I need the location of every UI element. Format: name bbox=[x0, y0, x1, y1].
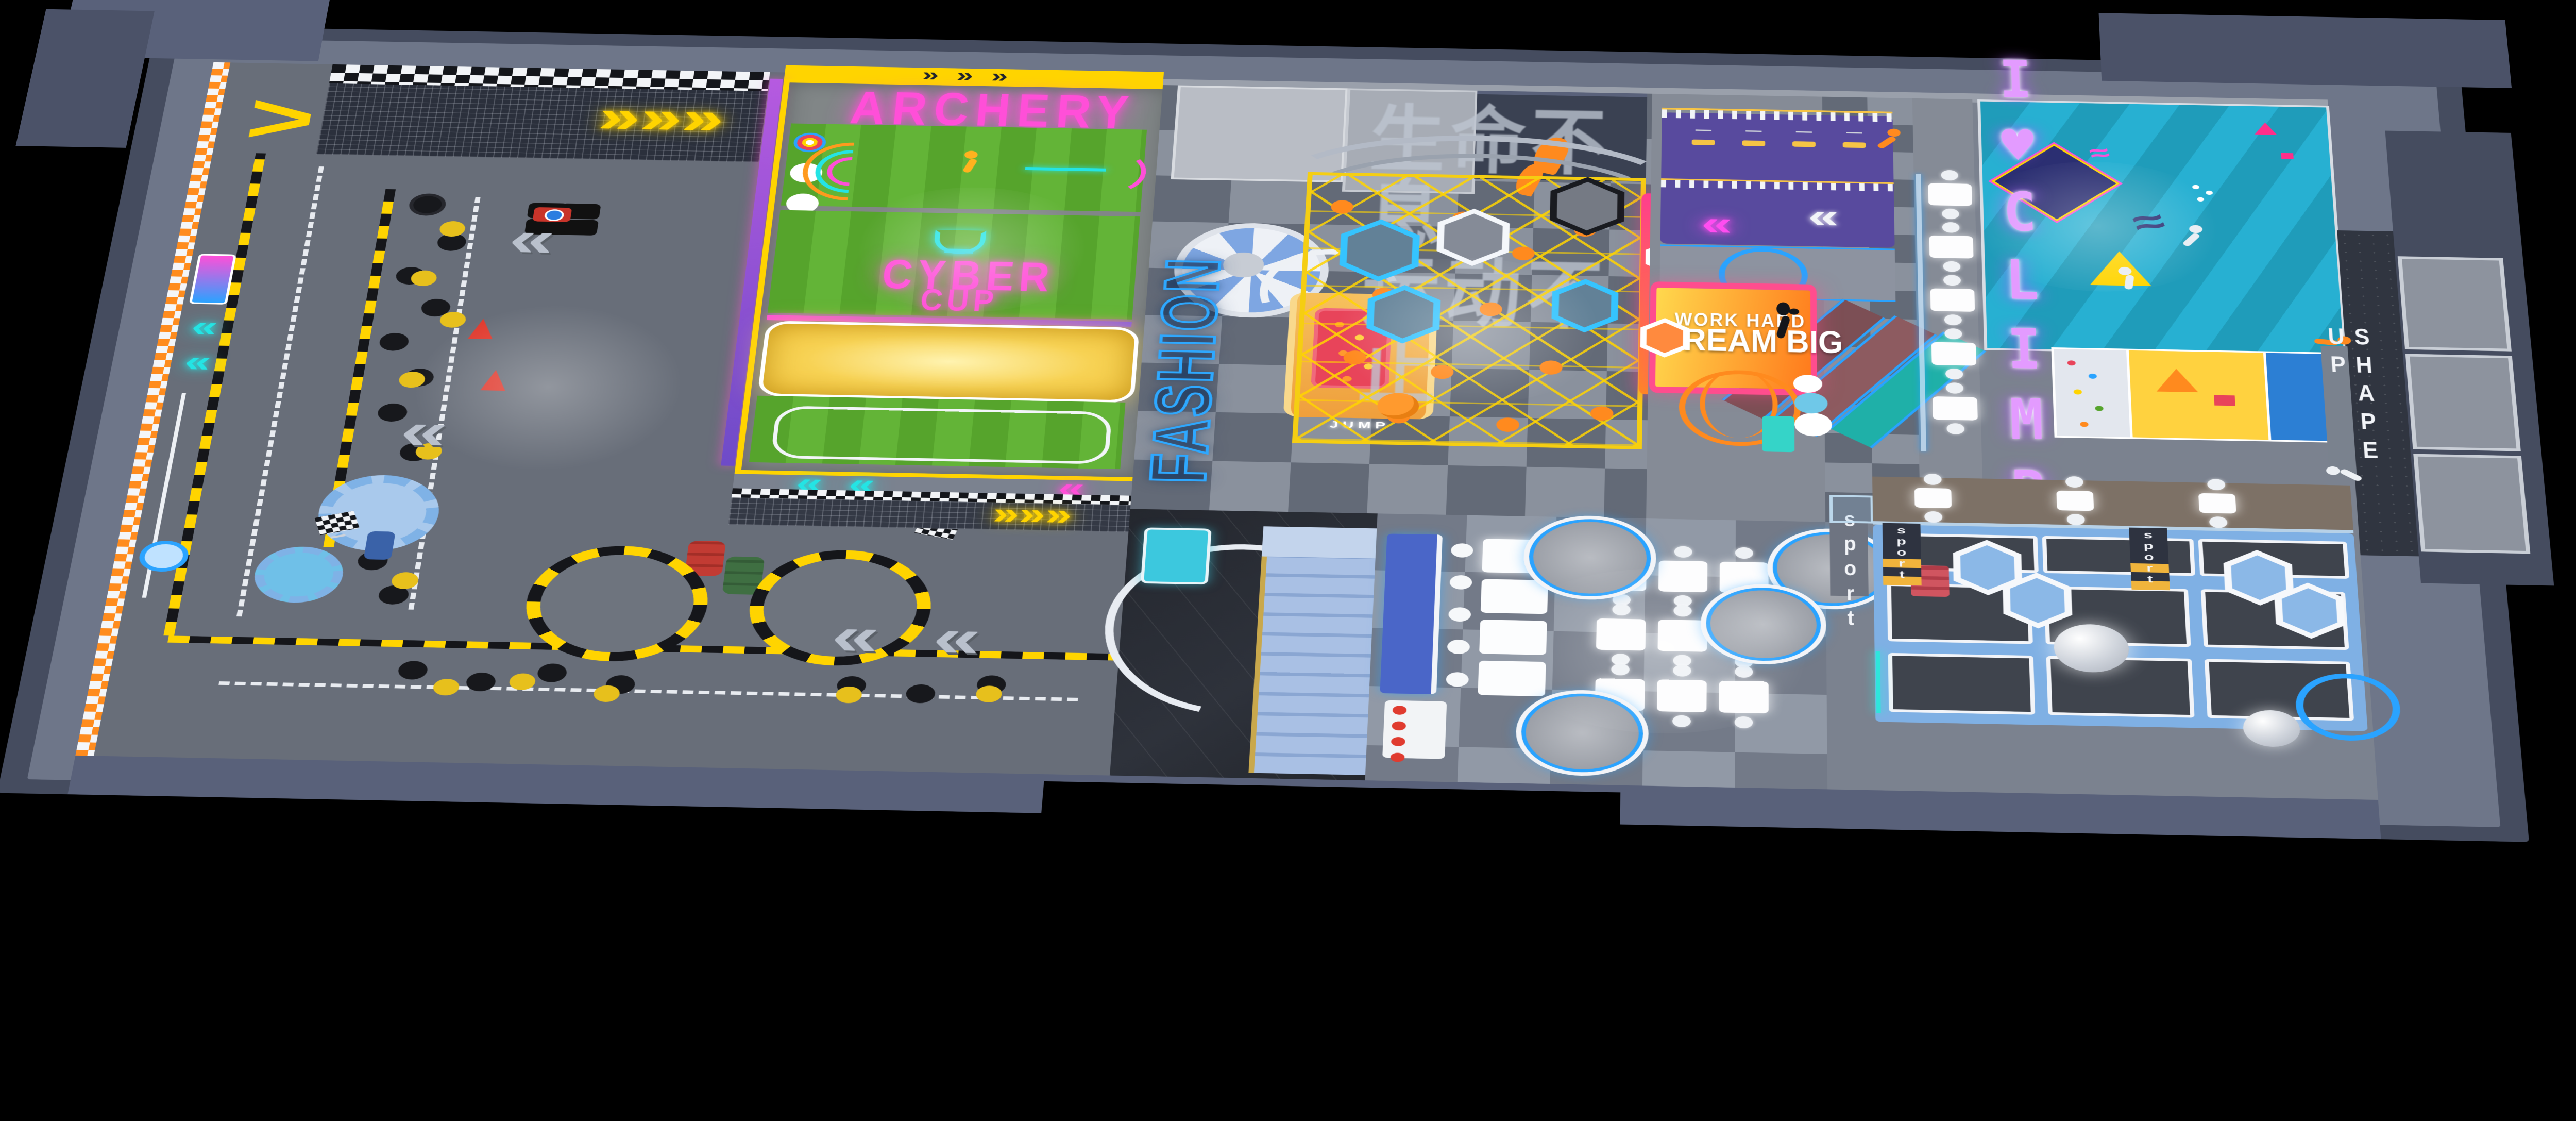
archery-neon-figure bbox=[954, 150, 987, 178]
booth-table bbox=[1930, 288, 1975, 311]
climb-panel-yellow bbox=[2126, 349, 2272, 442]
building-plan: »»» > « « « « « « »»» ARCHERY CY bbox=[0, 22, 2576, 919]
sport-pillar-text: sport bbox=[1838, 508, 1861, 610]
side-room bbox=[2405, 354, 2521, 451]
barrel-blue bbox=[364, 531, 396, 560]
booth-table bbox=[1928, 183, 1972, 206]
teal-mini-wall bbox=[1762, 416, 1794, 453]
fashion-floor-text: FASHION bbox=[1132, 309, 1234, 484]
swing-seat bbox=[1792, 141, 1816, 147]
booth-table bbox=[1929, 236, 1973, 259]
bar-counter bbox=[1380, 533, 1443, 694]
trampoline-lane bbox=[2042, 536, 2195, 576]
swing-seat bbox=[1843, 142, 1866, 148]
basketball-silhouette-ball bbox=[1789, 308, 1799, 315]
neon-hexagon-center bbox=[1438, 213, 1508, 261]
entry-stair-landing bbox=[1262, 526, 1377, 558]
cup-neon-text: CUP bbox=[919, 282, 999, 319]
booth-table bbox=[1933, 396, 1978, 421]
swing-seat bbox=[1692, 140, 1715, 145]
fec-floorplan-render: »»» > « « « « « « »»» ARCHERY CY bbox=[0, 0, 2576, 1121]
barrier-chevron: « bbox=[505, 210, 559, 267]
barrier-chevron: « bbox=[930, 606, 984, 670]
startgrid-chevrons: »»» bbox=[595, 90, 727, 144]
trampoline-bed bbox=[1888, 653, 2036, 715]
cyan-neon-strip bbox=[1876, 651, 1881, 713]
entry-staircase-blue bbox=[1248, 526, 1382, 775]
cage-hexagon-center bbox=[1552, 181, 1623, 231]
snowman-figure bbox=[1793, 375, 1823, 393]
foam-pit-yellow bbox=[757, 321, 1140, 403]
sport-pillar-text: sport bbox=[1892, 525, 1910, 555]
mezzanine-table bbox=[2198, 493, 2236, 514]
platform-chevron-pink: « bbox=[1701, 204, 1733, 243]
exterior-block-topright bbox=[2099, 13, 2512, 88]
dining-table bbox=[1657, 679, 1707, 712]
dining-table bbox=[1596, 618, 1646, 651]
sport-pillar-text: sport bbox=[2139, 529, 2158, 560]
side-room bbox=[2398, 256, 2512, 351]
traffic-cone bbox=[480, 370, 508, 391]
dining-table bbox=[1658, 560, 1707, 592]
platform-chevron-white: « bbox=[1808, 196, 1839, 236]
memphis-triangle-pink bbox=[2254, 122, 2277, 135]
mezzanine-table bbox=[1914, 488, 1952, 509]
traffic-cone bbox=[468, 319, 496, 339]
dining-table bbox=[1719, 681, 1768, 714]
neon-hexagon-center bbox=[1341, 224, 1418, 277]
neon-hexagon-center bbox=[1368, 290, 1439, 339]
exterior-block-left bbox=[15, 9, 154, 148]
mezzanine-table bbox=[2056, 491, 2094, 511]
dining-table bbox=[1657, 620, 1707, 652]
climb-panel-light bbox=[2051, 347, 2132, 439]
climb-panel-holds bbox=[2067, 360, 2075, 365]
memphis-dots-white bbox=[2192, 185, 2199, 190]
swing-seat bbox=[1742, 140, 1765, 146]
south-court-lines bbox=[770, 406, 1112, 464]
barrier-chevron: « bbox=[828, 604, 883, 668]
side-room bbox=[2413, 454, 2530, 554]
barrier-chevron: « bbox=[396, 400, 452, 461]
booth-table bbox=[1931, 342, 1976, 366]
glass-display-case bbox=[1829, 495, 1874, 524]
honeycomb-center bbox=[2005, 577, 2070, 624]
entrance-void bbox=[1035, 781, 1621, 900]
honeycomb-center bbox=[2277, 588, 2343, 634]
drink-station bbox=[1382, 700, 1447, 759]
pitlane-chevrons: »»» bbox=[991, 496, 1073, 532]
ticket-desk-cyan bbox=[1141, 527, 1212, 584]
billboard-hex-center bbox=[1643, 322, 1686, 354]
neon-hexagon-center bbox=[1554, 283, 1616, 328]
climb-panel-yellow-print bbox=[2156, 369, 2198, 392]
